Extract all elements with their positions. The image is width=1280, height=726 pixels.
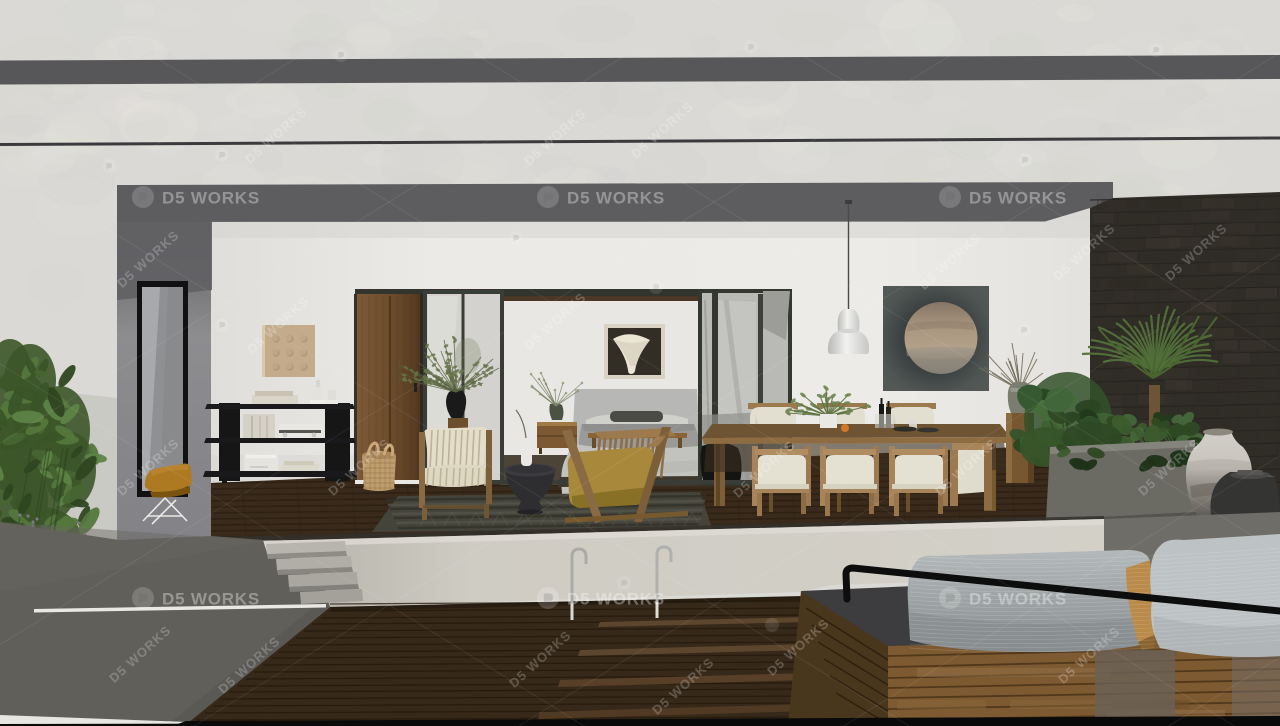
svg-text:D5 WORKS: D5 WORKS [567,189,665,208]
svg-text:D5 WORKS: D5 WORKS [969,590,1067,609]
svg-text:D5 WORKS: D5 WORKS [162,189,260,208]
svg-text:D5 WORKS: D5 WORKS [969,189,1067,208]
svg-text:D5 WORKS: D5 WORKS [567,590,665,609]
svg-text:D5 WORKS: D5 WORKS [162,590,260,609]
